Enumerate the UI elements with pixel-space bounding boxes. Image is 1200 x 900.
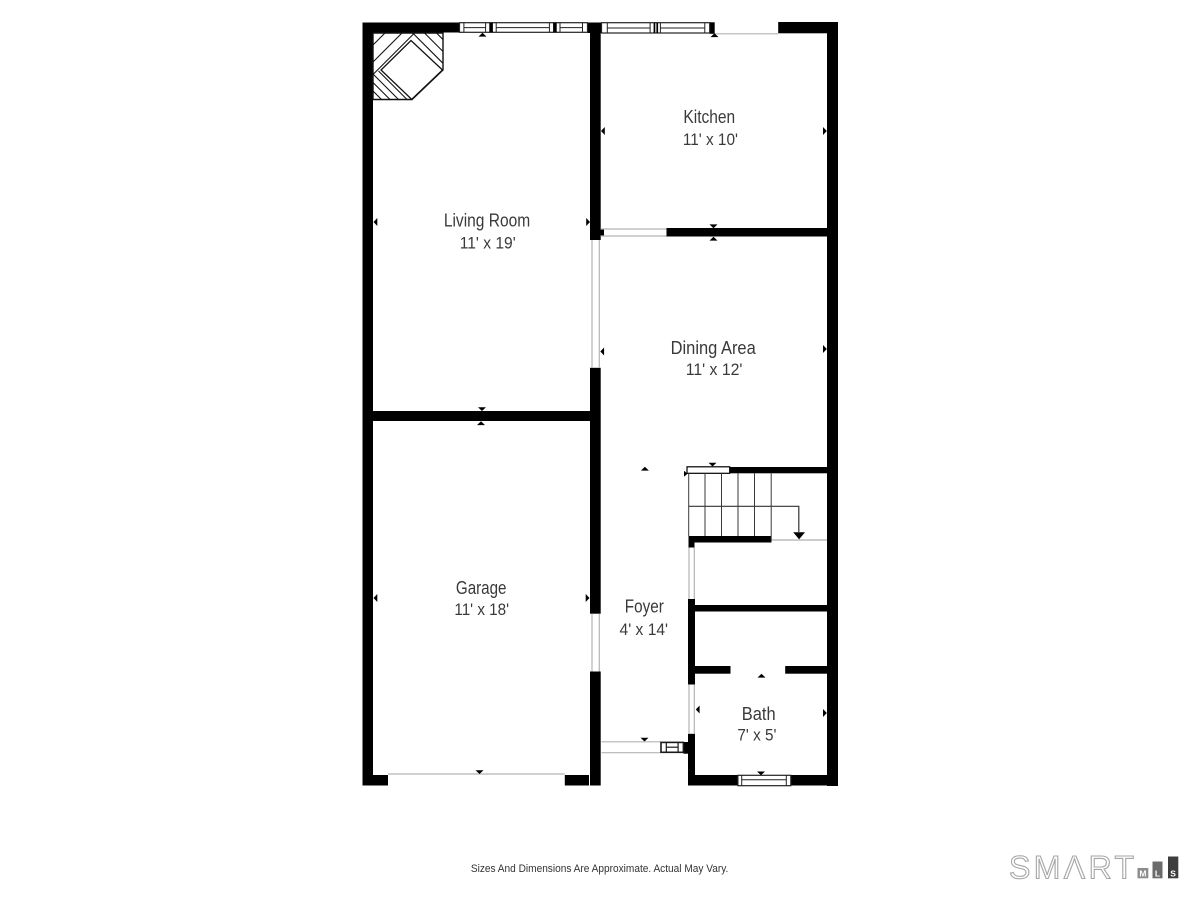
svg-text:7' x 5': 7' x 5': [737, 725, 776, 744]
svg-text:SMΛRT: SMΛRT: [1009, 849, 1137, 885]
svg-text:4' x 14': 4' x 14': [620, 620, 669, 639]
svg-text:Living Room: Living Room: [444, 210, 530, 231]
svg-text:Kitchen: Kitchen: [683, 106, 735, 127]
svg-text:Garage: Garage: [456, 577, 507, 598]
svg-text:11' x 19': 11' x 19': [460, 234, 516, 253]
svg-text:11' x 18': 11' x 18': [454, 600, 509, 619]
svg-text:S: S: [1170, 869, 1176, 879]
svg-text:Foyer: Foyer: [625, 596, 664, 617]
svg-text:Dining Area: Dining Area: [671, 337, 757, 358]
svg-text:Sizes And Dimensions Are Appro: Sizes And Dimensions Are Approximate. Ac…: [471, 863, 729, 875]
svg-text:11' x 10': 11' x 10': [683, 130, 738, 149]
svg-text:Bath: Bath: [742, 703, 776, 724]
svg-text:M: M: [1139, 869, 1146, 879]
svg-text:11' x 12': 11' x 12': [686, 360, 743, 379]
svg-text:L: L: [1155, 869, 1160, 879]
